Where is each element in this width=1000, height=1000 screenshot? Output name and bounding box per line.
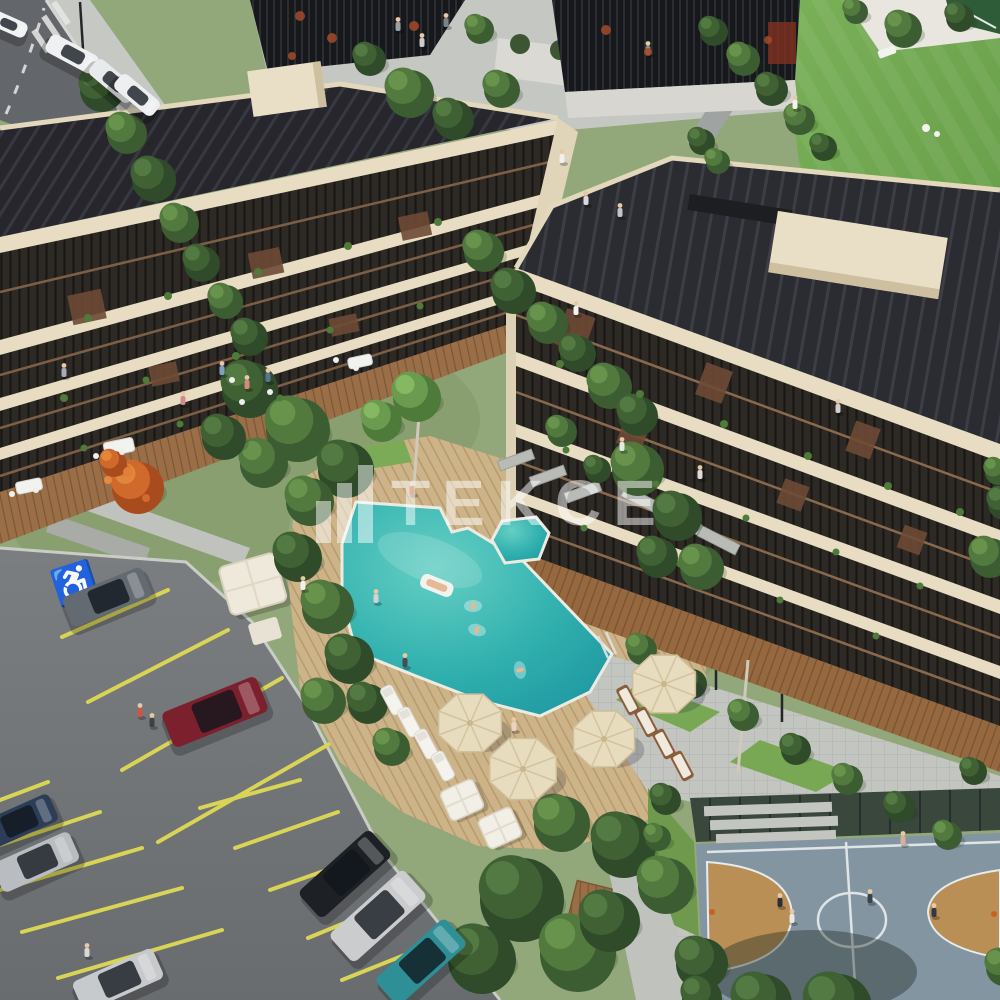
detail-dot bbox=[239, 399, 245, 405]
detail-dot bbox=[653, 481, 660, 488]
detail-dot bbox=[229, 377, 235, 383]
detail-dot bbox=[409, 21, 419, 31]
detail-dot bbox=[601, 25, 611, 35]
detail-dot bbox=[884, 482, 892, 490]
stone-benches bbox=[704, 802, 838, 844]
detail-dot bbox=[254, 268, 262, 276]
detail-dot bbox=[434, 218, 442, 226]
detail-dot bbox=[777, 597, 784, 604]
detail-dot bbox=[84, 314, 92, 322]
detail-dot bbox=[267, 389, 273, 395]
detail-dot bbox=[709, 909, 715, 915]
detail-dot bbox=[563, 447, 570, 454]
detail-dot bbox=[327, 33, 337, 43]
detail-dot bbox=[295, 11, 305, 21]
scene-svg: ♿ bbox=[0, 0, 1000, 1000]
detail-dot bbox=[556, 360, 564, 368]
detail-dot bbox=[833, 549, 840, 556]
detail-dot bbox=[277, 395, 284, 402]
detail-dot bbox=[720, 420, 728, 428]
detail-dot bbox=[327, 327, 334, 334]
kids-pool bbox=[492, 517, 549, 563]
detail-dot bbox=[804, 452, 812, 460]
detail-dot bbox=[956, 508, 964, 516]
detail-dot bbox=[93, 453, 99, 459]
detail-dot bbox=[917, 583, 924, 590]
detail-dot bbox=[60, 394, 68, 402]
detail-dot bbox=[581, 525, 588, 532]
aerial-render-stage: ♿ bbox=[0, 0, 1000, 1000]
detail-dot bbox=[119, 449, 125, 455]
detail-dot bbox=[873, 633, 880, 640]
detail-dot bbox=[33, 487, 39, 493]
detail-dot bbox=[164, 292, 172, 300]
detail-dot bbox=[104, 476, 112, 484]
detail-dot bbox=[636, 390, 644, 398]
detail-dot bbox=[288, 52, 296, 60]
detail-dot bbox=[143, 377, 150, 384]
swimmer bbox=[464, 600, 482, 612]
detail-dot bbox=[142, 494, 150, 502]
brick-accent bbox=[768, 22, 796, 64]
detail-dot bbox=[677, 561, 684, 568]
detail-dot bbox=[743, 515, 750, 522]
detail-dot bbox=[123, 467, 133, 477]
detail-dot bbox=[9, 491, 15, 497]
detail-dot bbox=[232, 352, 240, 360]
detail-dot bbox=[344, 242, 352, 250]
detail-dot bbox=[644, 48, 652, 56]
detail-dot bbox=[81, 445, 88, 452]
detail-dot bbox=[764, 36, 772, 44]
detail-dot bbox=[934, 131, 940, 137]
detail-dot bbox=[353, 365, 359, 371]
detail-dot bbox=[991, 911, 997, 917]
detail-dot bbox=[333, 357, 339, 363]
detail-dot bbox=[922, 124, 930, 132]
detail-dot bbox=[417, 303, 424, 310]
detail-dot bbox=[177, 421, 184, 428]
